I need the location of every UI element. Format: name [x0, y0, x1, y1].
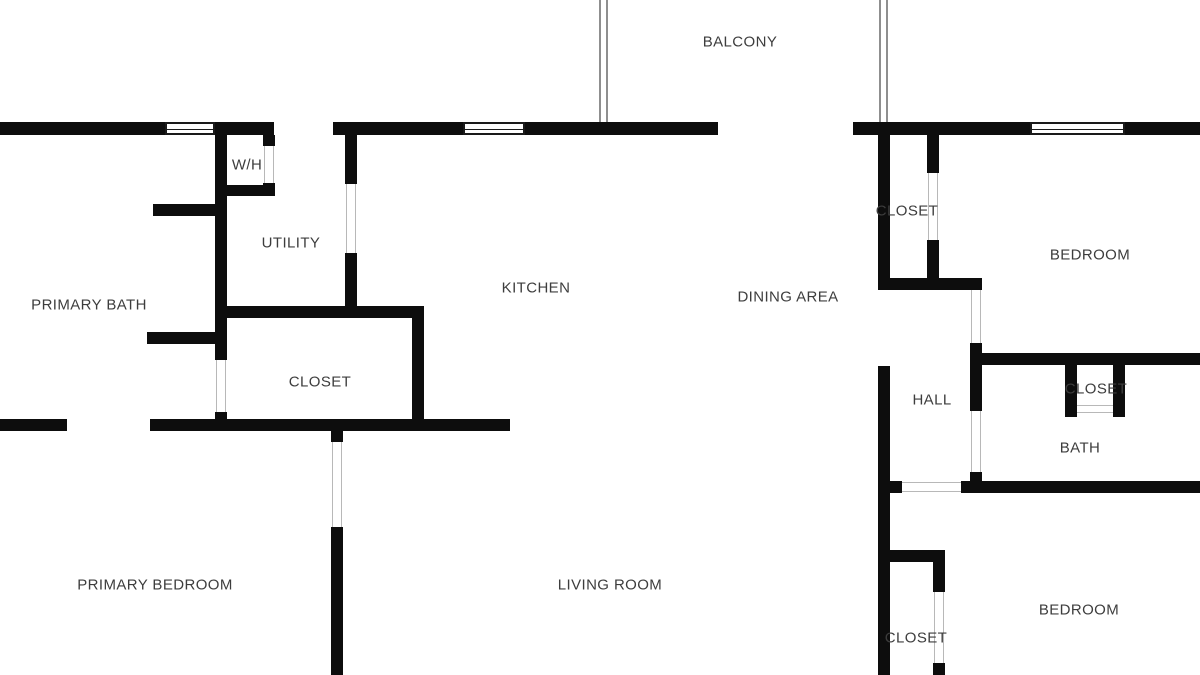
room-label-closet-bedroom2: CLOSET [885, 630, 947, 647]
wall-segment [215, 135, 227, 360]
wall-segment [333, 122, 463, 135]
room-label-closet-primary: CLOSET [289, 374, 351, 391]
wall-segment [933, 663, 945, 675]
wall-segment [933, 550, 945, 592]
wall-segment [853, 122, 1030, 135]
door-opening [216, 360, 226, 412]
balcony-railing [879, 0, 888, 122]
room-label-utility: UTILITY [262, 235, 321, 252]
window-pane-line [167, 129, 213, 130]
wall-segment [345, 135, 357, 184]
room-label-living-room: LIVING ROOM [558, 577, 662, 594]
room-label-bedroom2: BEDROOM [1039, 602, 1119, 619]
wall-segment [221, 306, 423, 318]
window-pane-line [1032, 129, 1123, 130]
room-label-bedroom1: BEDROOM [1050, 247, 1130, 264]
window [463, 122, 525, 135]
wall-segment [215, 122, 274, 135]
wall-segment [263, 135, 275, 146]
room-label-hall: HALL [912, 392, 951, 409]
door-opening [971, 411, 981, 472]
room-label-primary-bedroom: PRIMARY BEDROOM [77, 577, 232, 594]
wall-segment [412, 306, 424, 431]
door-opening [902, 482, 961, 492]
door-opening [332, 442, 342, 527]
door-opening [971, 290, 981, 343]
balcony-railing [599, 0, 608, 122]
room-label-closet-bath: CLOSET [1065, 381, 1127, 398]
room-label-primary-bath: PRIMARY BATH [31, 297, 147, 314]
room-label-kitchen: KITCHEN [502, 280, 571, 297]
window [165, 122, 215, 135]
wall-segment [147, 332, 218, 344]
wall-segment [970, 353, 1200, 365]
wall-segment [927, 135, 939, 173]
wall-segment [961, 481, 1200, 493]
room-label-water-heater: W/H [232, 157, 262, 174]
wall-segment [1125, 122, 1200, 135]
door-opening [346, 184, 356, 253]
room-label-closet-bedroom1: CLOSET [876, 203, 938, 220]
door-opening [264, 146, 274, 183]
floor-plan: BALCONYW/HUTILITYPRIMARY BATHCLOSETKITCH… [0, 0, 1200, 675]
wall-segment [215, 185, 275, 196]
room-label-balcony: BALCONY [703, 34, 778, 51]
wall-segment [525, 122, 718, 135]
wall-segment [0, 419, 67, 431]
window [1030, 122, 1125, 135]
wall-segment [150, 419, 510, 431]
door-opening [1077, 405, 1113, 413]
room-label-dining-area: DINING AREA [737, 289, 838, 306]
wall-segment [331, 431, 343, 442]
wall-segment [878, 278, 982, 290]
door-opening [934, 592, 944, 663]
window-pane-line [465, 129, 523, 130]
wall-segment [331, 527, 343, 675]
room-label-bath: BATH [1060, 440, 1101, 457]
wall-segment [927, 240, 939, 280]
wall-segment [0, 122, 165, 135]
wall-segment [153, 204, 217, 216]
wall-segment [878, 481, 902, 493]
